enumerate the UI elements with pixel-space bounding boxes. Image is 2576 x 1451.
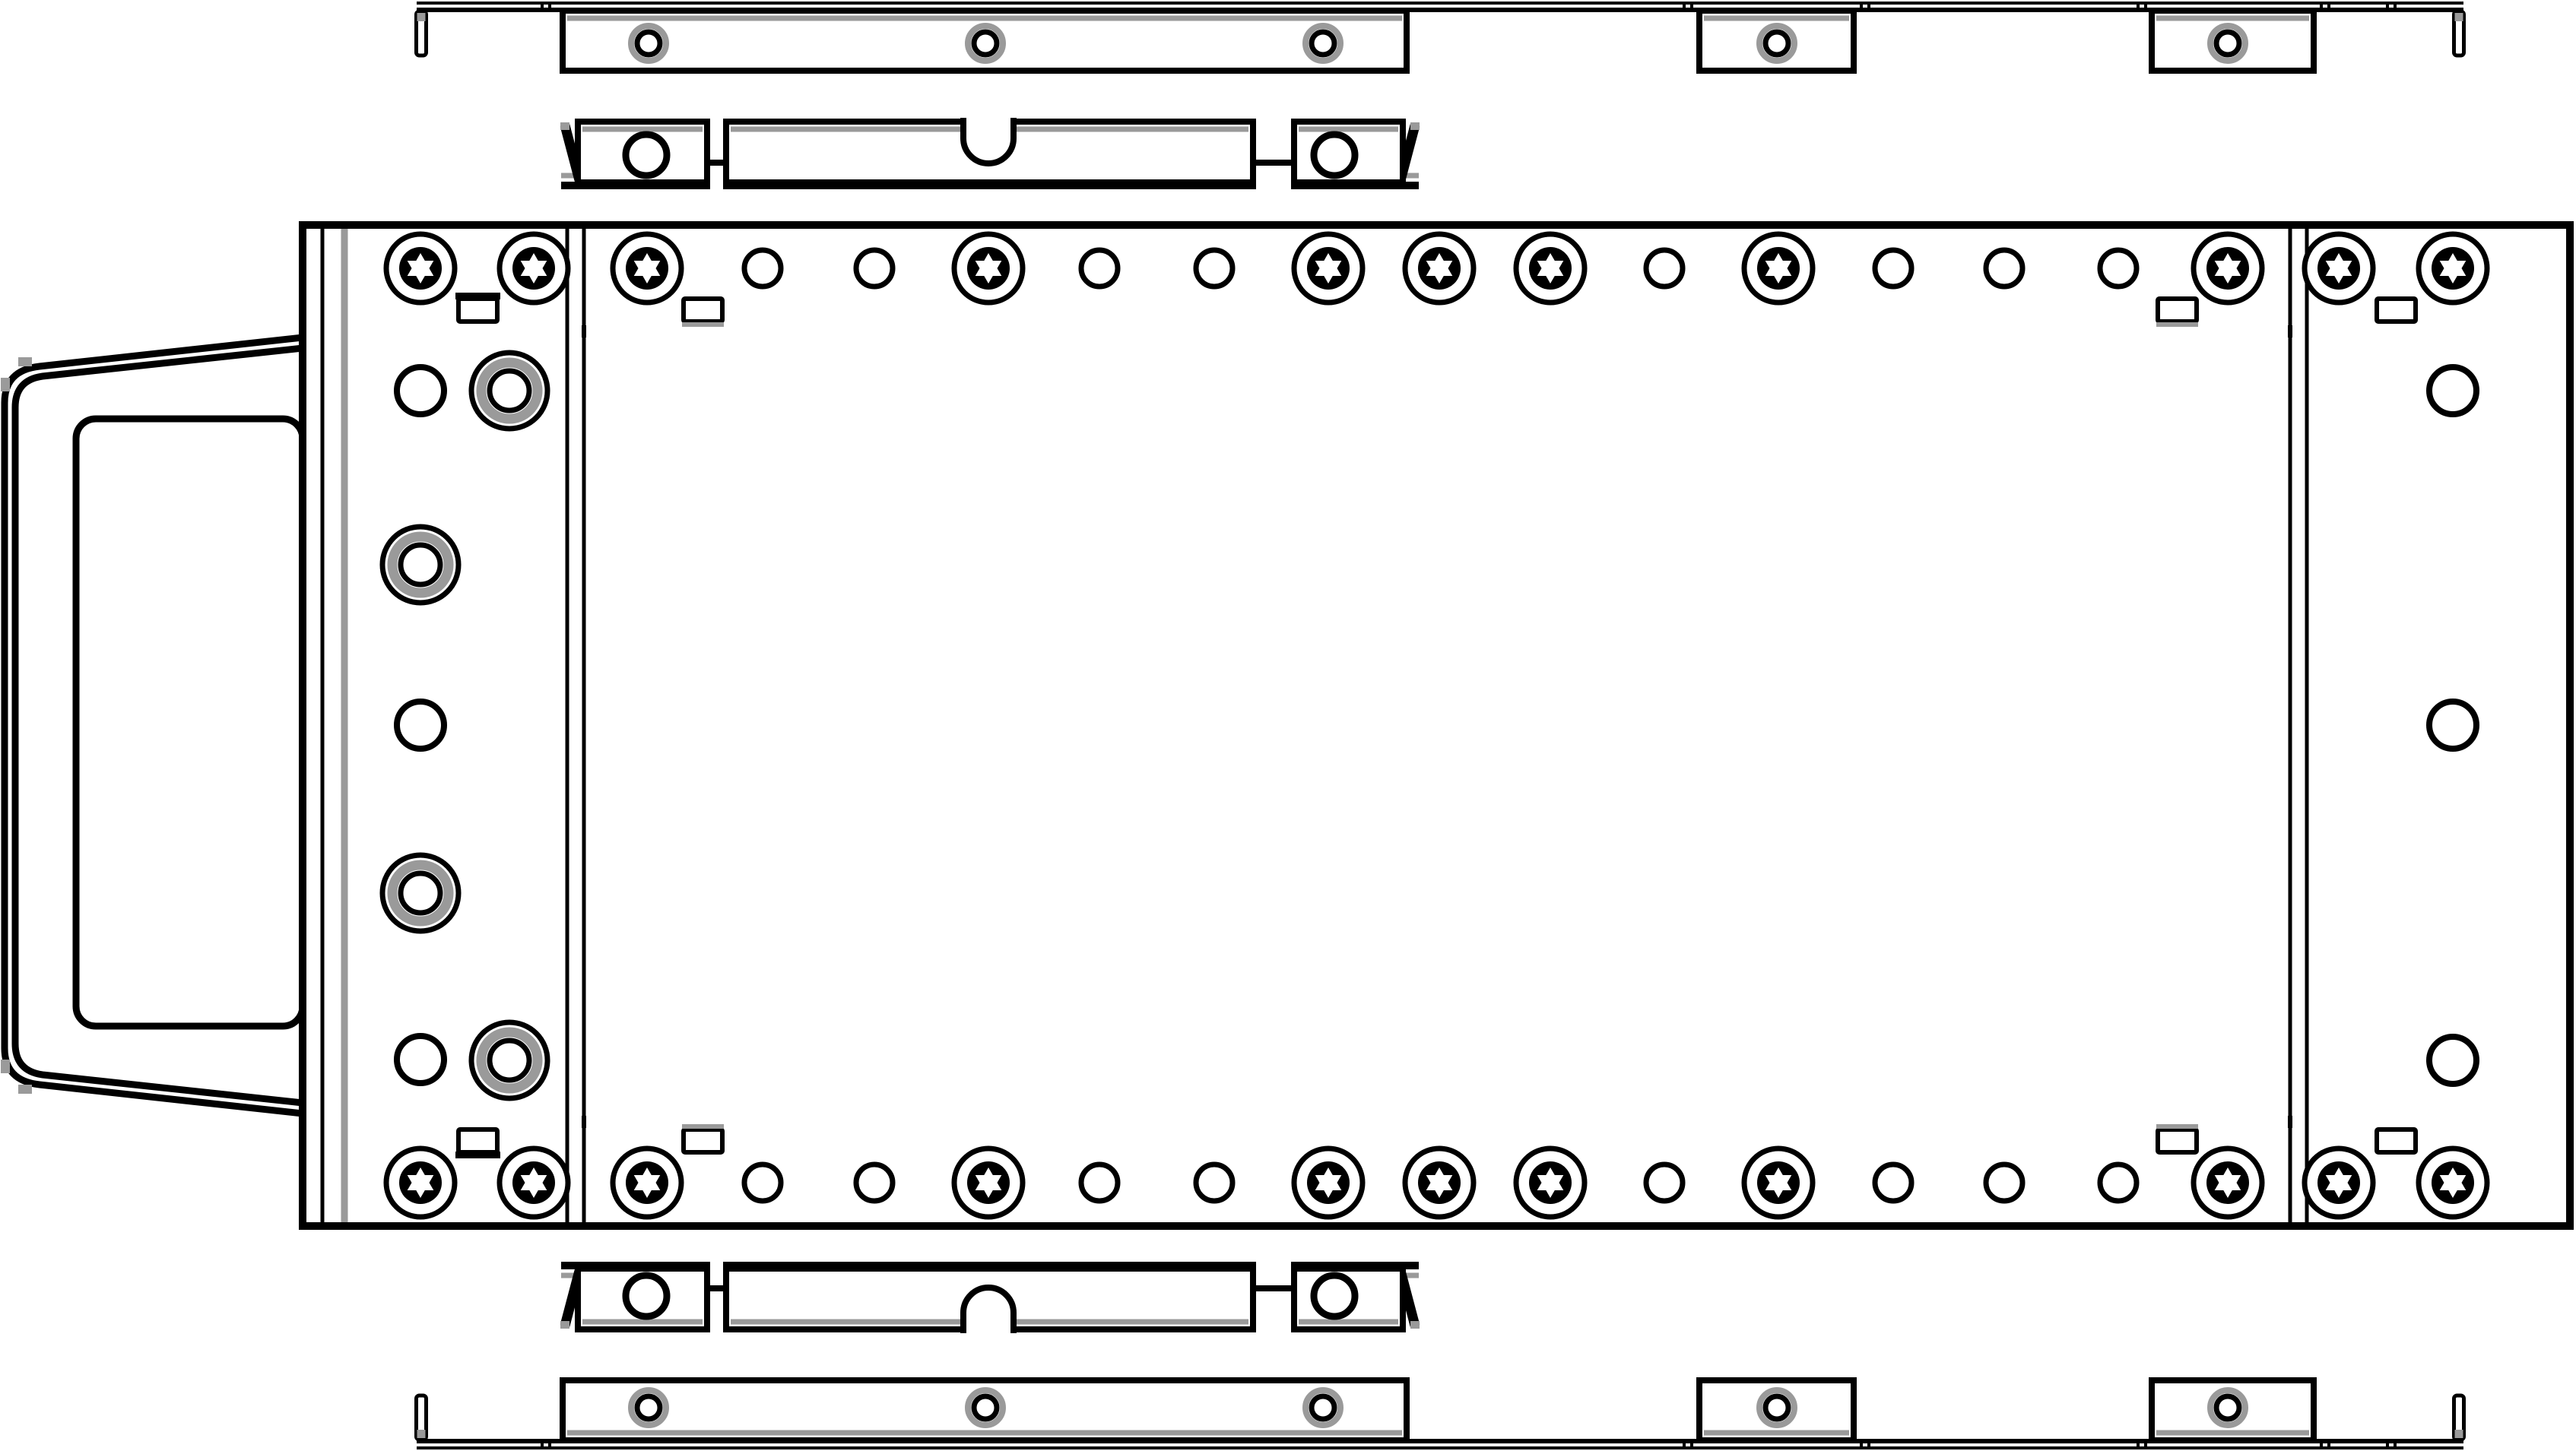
separator-tick: [582, 325, 586, 337]
separator-tick: [582, 1116, 586, 1128]
torx-screw-icon: [1516, 234, 1585, 303]
pilot-hole: [1986, 250, 2022, 287]
torx-screw-icon: [613, 1148, 681, 1217]
pilot-hole: [1196, 250, 1232, 287]
torx-screw-icon: [2305, 1148, 2373, 1217]
slot-shadow-edge: [682, 322, 724, 327]
handle-corner-pad: [18, 1085, 32, 1094]
bracket-screw-hole: [1314, 135, 1355, 176]
torx-screw-icon: [500, 1148, 568, 1217]
torx-screw-icon: [1294, 1148, 1363, 1217]
rail-screw-icon: [1305, 1390, 1340, 1425]
clip-tip-pad: [1410, 1321, 1420, 1329]
hook-spring-tab: [417, 13, 426, 21]
rail-screw-icon: [1759, 26, 1794, 61]
torx-screw-icon: [1405, 1148, 1474, 1217]
screw-head: [1312, 1396, 1334, 1419]
torx-screw-icon: [1405, 234, 1474, 303]
torx-screw-icon: [1744, 1148, 1813, 1217]
slot-opening: [2377, 299, 2416, 322]
rail-screw-icon: [2210, 1390, 2245, 1425]
torx-screw-icon: [1516, 1148, 1585, 1217]
rail-screw-icon: [2210, 26, 2245, 61]
rail-screw-icon: [1759, 1390, 1794, 1425]
handle-corner-pad: [1, 1060, 10, 1073]
bottom-mounting-rail: [417, 1380, 2464, 1449]
slot-cutout: [2377, 299, 2416, 322]
screw-head: [1765, 1396, 1788, 1419]
slot-opening: [458, 299, 497, 322]
bracket-screw-hole: [626, 1275, 667, 1316]
round-hole: [2429, 367, 2476, 414]
slot-cutout: [2156, 299, 2198, 327]
pilot-hole: [1196, 1164, 1232, 1201]
grommet-socket-icon: [382, 527, 458, 603]
top-rails: [417, 2, 2464, 189]
screw-head: [1312, 32, 1334, 55]
body-outline: [303, 225, 2570, 1226]
socket-inner-ring: [401, 873, 440, 913]
bracket-step-notch: [1253, 163, 1294, 189]
grommet-socket-icon: [471, 353, 547, 429]
slot-opening: [684, 1129, 722, 1152]
torx-screw-icon: [1294, 234, 1363, 303]
slot-cutout: [682, 1124, 724, 1152]
pilot-hole: [1875, 1164, 1911, 1201]
torx-screw-icon: [2194, 234, 2262, 303]
torx-screw-icon: [1744, 234, 1813, 303]
slot-cutout: [682, 299, 724, 327]
slot-opening: [2158, 1129, 2197, 1152]
bottom-bracket-rail: [560, 1262, 1420, 1333]
screw-head: [974, 32, 997, 55]
front-handle: [1, 337, 303, 1114]
torx-screw-icon: [386, 234, 455, 303]
torx-screw-icon: [613, 234, 681, 303]
clip-tip-pad: [560, 122, 569, 130]
pilot-hole: [2100, 250, 2137, 287]
torx-screw-icon: [500, 234, 568, 303]
slot-cutout: [2156, 1124, 2198, 1152]
pilot-hole: [744, 1164, 781, 1201]
pilot-hole: [1646, 1164, 1683, 1201]
slot-opening: [2158, 299, 2197, 322]
separator-tick: [2288, 325, 2292, 337]
screw-head: [974, 1396, 997, 1419]
screw-head: [2216, 1396, 2239, 1419]
screw-head: [637, 32, 660, 55]
handle-corner-pad: [1, 378, 10, 391]
rail-screw-icon: [968, 26, 1003, 61]
torx-screw-icon: [386, 1148, 455, 1217]
torx-screw-icon: [2419, 1148, 2487, 1217]
handle-corner-pad: [18, 357, 32, 366]
grommet-socket-icon: [382, 855, 458, 931]
bracket-screw-hole: [626, 135, 667, 176]
slot-opening: [2377, 1129, 2416, 1152]
grommet-socket-icon: [471, 1022, 547, 1098]
round-hole: [397, 367, 444, 414]
slot-opening: [684, 299, 722, 322]
pilot-hole: [856, 250, 893, 287]
rail-screw-icon: [1305, 26, 1340, 61]
pilot-hole: [744, 250, 781, 287]
hook-spring-tab: [2455, 1430, 2463, 1438]
pilot-hole: [1081, 250, 1118, 287]
top-bracket-rail: [560, 118, 1420, 189]
slot-reinforced-edge: [455, 293, 500, 299]
chassis-body: [303, 225, 2570, 1226]
screw-head: [2216, 32, 2239, 55]
pilot-hole: [1081, 1164, 1118, 1201]
technical-drawing-canvas: [0, 0, 2576, 1451]
round-hole: [2429, 702, 2476, 749]
slot-cutout: [2377, 1129, 2416, 1152]
separator-tick: [2288, 1116, 2292, 1128]
pilot-hole: [1646, 250, 1683, 287]
bracket-step-notch: [1253, 1262, 1294, 1288]
round-hole: [2429, 1037, 2476, 1084]
torx-screw-icon: [954, 234, 1023, 303]
slot-cutout: [455, 293, 500, 322]
round-hole: [397, 702, 444, 749]
bottom-rails: [417, 1262, 2464, 1449]
rail-screw-icon: [968, 1390, 1003, 1425]
clip-tip-pad: [560, 1321, 569, 1329]
chassis-assembly-drawing: [0, 0, 2576, 1451]
slot-shadow-edge: [2156, 1124, 2198, 1129]
pilot-hole: [2100, 1164, 2137, 1201]
pilot-hole: [1875, 250, 1911, 287]
rail-screw-icon: [631, 1390, 666, 1425]
clip-tip-pad: [1410, 122, 1420, 130]
hook-spring-tab: [2455, 13, 2463, 21]
rail-screw-icon: [631, 26, 666, 61]
torx-screw-icon: [2194, 1148, 2262, 1217]
socket-inner-ring: [401, 545, 440, 585]
socket-inner-ring: [490, 1041, 529, 1080]
torx-screw-icon: [2305, 234, 2373, 303]
bracket-screw-hole: [1314, 1275, 1355, 1316]
screw-head: [637, 1396, 660, 1419]
slot-opening: [458, 1129, 497, 1152]
screw-head: [1765, 32, 1788, 55]
slot-cutout: [455, 1129, 500, 1158]
torx-screw-icon: [2419, 234, 2487, 303]
handle-grip-cutout: [76, 419, 303, 1026]
top-mounting-rail: [417, 2, 2464, 71]
hook-spring-tab: [417, 1430, 426, 1438]
pilot-hole: [856, 1164, 893, 1201]
slot-shadow-edge: [2156, 322, 2198, 327]
slot-shadow-edge: [682, 1124, 724, 1129]
torx-screw-icon: [954, 1148, 1023, 1217]
round-hole: [397, 1036, 444, 1083]
socket-inner-ring: [490, 371, 529, 410]
slot-reinforced-edge: [455, 1152, 500, 1158]
pilot-hole: [1986, 1164, 2022, 1201]
